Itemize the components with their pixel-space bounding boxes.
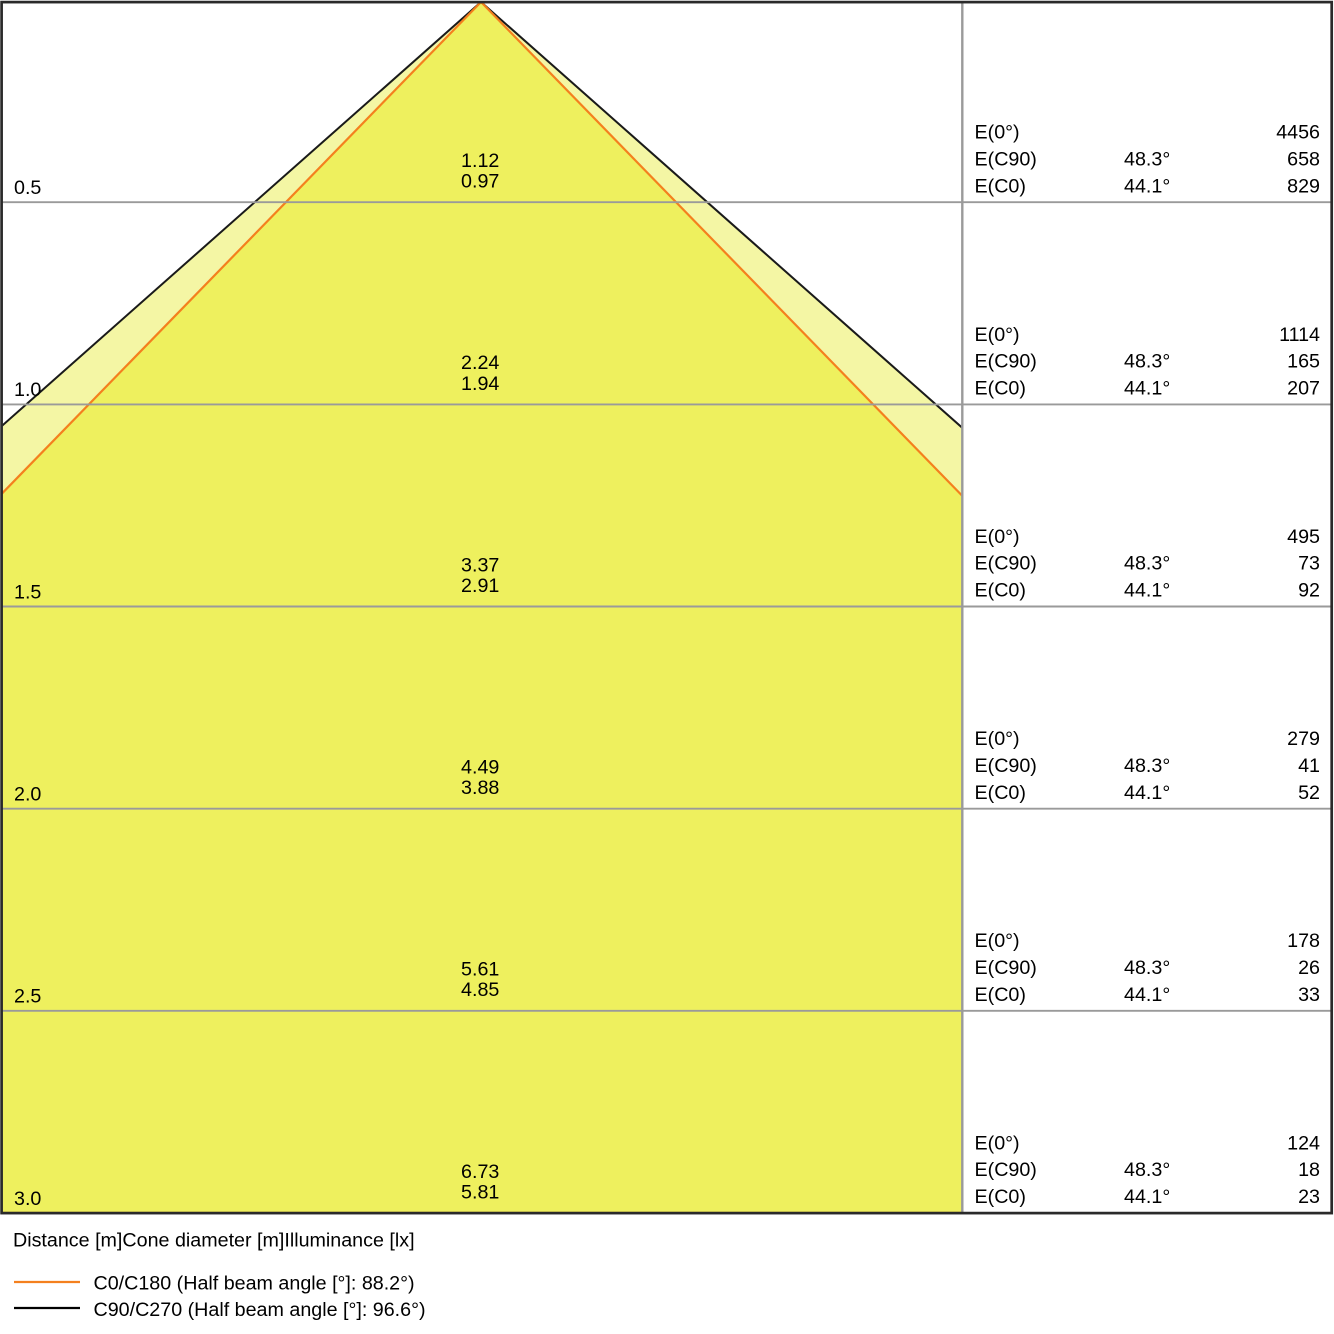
svg-text:48.3°: 48.3°	[1124, 351, 1170, 373]
svg-text:E(C0): E(C0)	[975, 1186, 1026, 1208]
svg-text:4.85: 4.85	[461, 979, 499, 1001]
svg-text:2.24: 2.24	[461, 352, 499, 374]
svg-text:C0/C180 (Half beam angle [°]:: C0/C180 (Half beam angle [°]: 88.2°)	[94, 1273, 415, 1295]
svg-text:2.91: 2.91	[461, 575, 499, 597]
svg-text:E(0°): E(0°)	[975, 930, 1020, 952]
svg-text:44.1°: 44.1°	[1124, 580, 1170, 602]
svg-text:5.61: 5.61	[461, 959, 499, 981]
svg-text:1.0: 1.0	[14, 379, 41, 401]
svg-text:18: 18	[1298, 1159, 1320, 1181]
svg-text:1.5: 1.5	[14, 581, 41, 603]
svg-text:E(C0): E(C0)	[975, 175, 1026, 197]
svg-text:E(C0): E(C0)	[975, 782, 1026, 804]
svg-text:52: 52	[1298, 782, 1320, 804]
svg-text:207: 207	[1287, 378, 1320, 400]
svg-text:44.1°: 44.1°	[1124, 1186, 1170, 1208]
svg-text:48.3°: 48.3°	[1124, 1159, 1170, 1181]
svg-text:23: 23	[1298, 1186, 1320, 1208]
svg-text:E(C0): E(C0)	[975, 378, 1026, 400]
svg-text:48.3°: 48.3°	[1124, 148, 1170, 170]
svg-text:E(C90): E(C90)	[975, 1159, 1037, 1181]
svg-text:E(0°): E(0°)	[975, 1132, 1020, 1154]
svg-text:3.0: 3.0	[14, 1188, 41, 1210]
svg-text:44.1°: 44.1°	[1124, 175, 1170, 197]
svg-text:279: 279	[1287, 728, 1320, 750]
svg-text:1.12: 1.12	[461, 150, 499, 172]
svg-text:4456: 4456	[1276, 122, 1320, 144]
svg-text:3.37: 3.37	[461, 554, 499, 576]
svg-text:E(C90): E(C90)	[975, 148, 1037, 170]
svg-text:92: 92	[1298, 580, 1320, 602]
svg-text:E(0°): E(0°)	[975, 324, 1020, 346]
svg-text:26: 26	[1298, 957, 1320, 979]
svg-text:0.5: 0.5	[14, 177, 41, 199]
svg-text:44.1°: 44.1°	[1124, 378, 1170, 400]
svg-text:2.0: 2.0	[14, 784, 41, 806]
svg-text:E(C90): E(C90)	[975, 755, 1037, 777]
svg-text:E(C90): E(C90)	[975, 351, 1037, 373]
svg-text:E(C90): E(C90)	[975, 957, 1037, 979]
svg-text:E(C90): E(C90)	[975, 553, 1037, 575]
svg-text:48.3°: 48.3°	[1124, 755, 1170, 777]
svg-text:1114: 1114	[1279, 324, 1320, 346]
svg-text:44.1°: 44.1°	[1124, 782, 1170, 804]
svg-text:48.3°: 48.3°	[1124, 553, 1170, 575]
svg-text:0.97: 0.97	[461, 171, 499, 193]
svg-text:44.1°: 44.1°	[1124, 984, 1170, 1006]
svg-text:73: 73	[1298, 553, 1320, 575]
svg-text:E(C0): E(C0)	[975, 984, 1026, 1006]
svg-text:Distance [m]Cone diameter [m]I: Distance [m]Cone diameter [m]Illuminance…	[13, 1230, 415, 1252]
svg-text:658: 658	[1287, 148, 1320, 170]
svg-text:6.73: 6.73	[461, 1161, 499, 1183]
svg-text:E(C0): E(C0)	[975, 580, 1026, 602]
svg-text:2.5: 2.5	[14, 986, 41, 1008]
svg-text:495: 495	[1287, 526, 1320, 548]
svg-text:E(0°): E(0°)	[975, 728, 1020, 750]
svg-text:3.88: 3.88	[461, 777, 499, 799]
svg-text:C90/C270 (Half beam angle [°]:: C90/C270 (Half beam angle [°]: 96.6°)	[94, 1299, 426, 1321]
svg-text:E(0°): E(0°)	[975, 122, 1020, 144]
svg-text:829: 829	[1287, 175, 1320, 197]
svg-text:178: 178	[1287, 930, 1320, 952]
svg-text:124: 124	[1287, 1132, 1320, 1154]
svg-text:33: 33	[1298, 984, 1320, 1006]
svg-text:5.81: 5.81	[461, 1181, 499, 1203]
svg-text:41: 41	[1298, 755, 1320, 777]
svg-text:165: 165	[1287, 351, 1320, 373]
svg-text:4.49: 4.49	[461, 757, 499, 779]
svg-text:48.3°: 48.3°	[1124, 957, 1170, 979]
svg-text:E(0°): E(0°)	[975, 526, 1020, 548]
svg-text:1.94: 1.94	[461, 373, 499, 395]
